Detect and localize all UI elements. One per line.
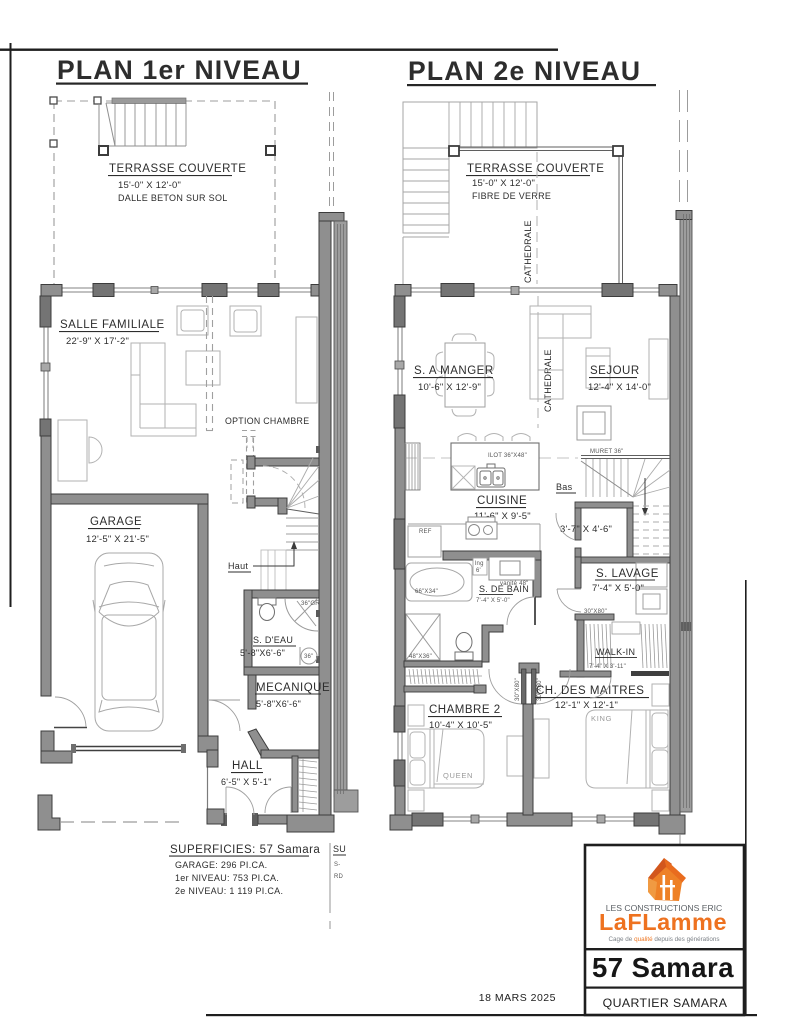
svg-text:OPTION CHAMBRE: OPTION CHAMBRE [225,416,309,426]
svg-text:REF: REF [419,529,432,535]
svg-text:SALLE FAMILIALE: SALLE FAMILIALE [60,319,165,331]
svg-text:7'-4" X 5'-0": 7'-4" X 5'-0" [592,583,644,594]
svg-text:ILOT 36"X48": ILOT 36"X48" [488,453,527,459]
svg-text:15'-0" X 12'-0": 15'-0" X 12'-0" [118,180,181,191]
svg-text:15'-0" X 12'-0": 15'-0" X 12'-0" [472,178,535,189]
svg-text:KING: KING [591,714,612,723]
svg-text:36": 36" [304,654,313,660]
svg-text:SUPERFICIES: 57 Samara: SUPERFICIES: 57 Samara [170,844,320,856]
svg-text:Cage de qualité depuis des gén: Cage de qualité depuis des générations [609,936,720,943]
svg-text:30"X80": 30"X80" [515,678,521,701]
svg-text:36"GR: 36"GR [301,601,320,607]
svg-text:S. LAVAGE: S. LAVAGE [596,568,659,580]
svg-text:S. DE BAIN: S. DE BAIN [479,584,529,594]
svg-text:Haut: Haut [228,561,248,571]
svg-text:5'-8"X6'-6": 5'-8"X6'-6" [256,699,301,709]
svg-text:7'-4" X 3'-11": 7'-4" X 3'-11" [589,664,626,670]
svg-text:22'-9" X 17'-2": 22'-9" X 17'-2" [66,336,129,347]
svg-text:TERRASSE COUVERTE: TERRASSE COUVERTE [467,163,604,175]
svg-text:66"X34": 66"X34" [415,589,438,595]
svg-text:SEJOUR: SEJOUR [590,365,640,377]
svg-text:LaFLamme: LaFLamme [599,909,727,935]
svg-text:Bas: Bas [556,482,573,492]
svg-text:DALLE BETON SUR SOL: DALLE BETON SUR SOL [118,193,228,203]
svg-text:57 Samara: 57 Samara [592,952,734,983]
svg-text:FIBRE DE VERRE: FIBRE DE VERRE [472,191,551,201]
svg-text:MECANIQUE: MECANIQUE [256,682,330,694]
svg-text:6': 6' [476,568,481,574]
svg-text:SU: SU [333,844,346,854]
svg-text:QUEEN: QUEEN [443,771,473,780]
svg-text:5'-8"X6'-6": 5'-8"X6'-6" [240,648,285,658]
svg-text:TERRASSE COUVERTE: TERRASSE COUVERTE [109,163,246,175]
svg-text:18 MARS 2025: 18 MARS 2025 [479,992,556,1004]
svg-text:30"X80": 30"X80" [584,609,607,615]
svg-text:CHAMBRE 2: CHAMBRE 2 [429,704,501,716]
svg-text:3'-7" X 4'-6": 3'-7" X 4'-6" [560,524,612,535]
svg-text:MURET 36": MURET 36" [590,449,624,455]
svg-text:10'-6" X 12'-9": 10'-6" X 12'-9" [418,382,481,393]
svg-text:CH. DES MAITRES: CH. DES MAITRES [536,685,644,697]
svg-text:GARAGE: 296 PI.CA.: GARAGE: 296 PI.CA. [175,860,267,870]
svg-text:CUISINE: CUISINE [477,495,527,507]
svg-text:2e NIVEAU: 1 119 PI.CA.: 2e NIVEAU: 1 119 PI.CA. [175,886,283,896]
svg-text:7'-4" X 5'-0": 7'-4" X 5'-0" [476,598,510,604]
svg-text:PLAN 1er NIVEAU: PLAN 1er NIVEAU [57,55,302,85]
svg-text:HALL: HALL [232,760,263,772]
svg-text:S. A MANGER: S. A MANGER [414,365,494,377]
svg-text:QUARTIER SAMARA: QUARTIER SAMARA [603,996,728,1010]
svg-text:48"X36": 48"X36" [409,654,432,660]
svg-text:12'-1" X 12'-1": 12'-1" X 12'-1" [555,700,618,711]
svg-text:PLAN 2e NIVEAU: PLAN 2e NIVEAU [408,56,641,86]
svg-text:12'-5" X 21'-5": 12'-5" X 21'-5" [86,534,149,545]
svg-text:12'-4" X 14'-0": 12'-4" X 14'-0" [588,382,651,393]
svg-text:S-: S- [334,862,340,868]
svg-text:RD: RD [334,874,344,880]
svg-text:S. D'EAU: S. D'EAU [253,635,293,645]
svg-text:WALK-IN: WALK-IN [596,647,635,657]
svg-text:CATHEDRALE: CATHEDRALE [543,349,553,412]
svg-text:GARAGE: GARAGE [90,516,142,528]
svg-text:lng: lng [475,561,484,567]
svg-text:6'-5" X 5'-1": 6'-5" X 5'-1" [221,777,272,787]
svg-text:CATHEDRALE: CATHEDRALE [523,220,533,283]
svg-text:1er NIVEAU: 753 PI.CA.: 1er NIVEAU: 753 PI.CA. [175,873,279,883]
